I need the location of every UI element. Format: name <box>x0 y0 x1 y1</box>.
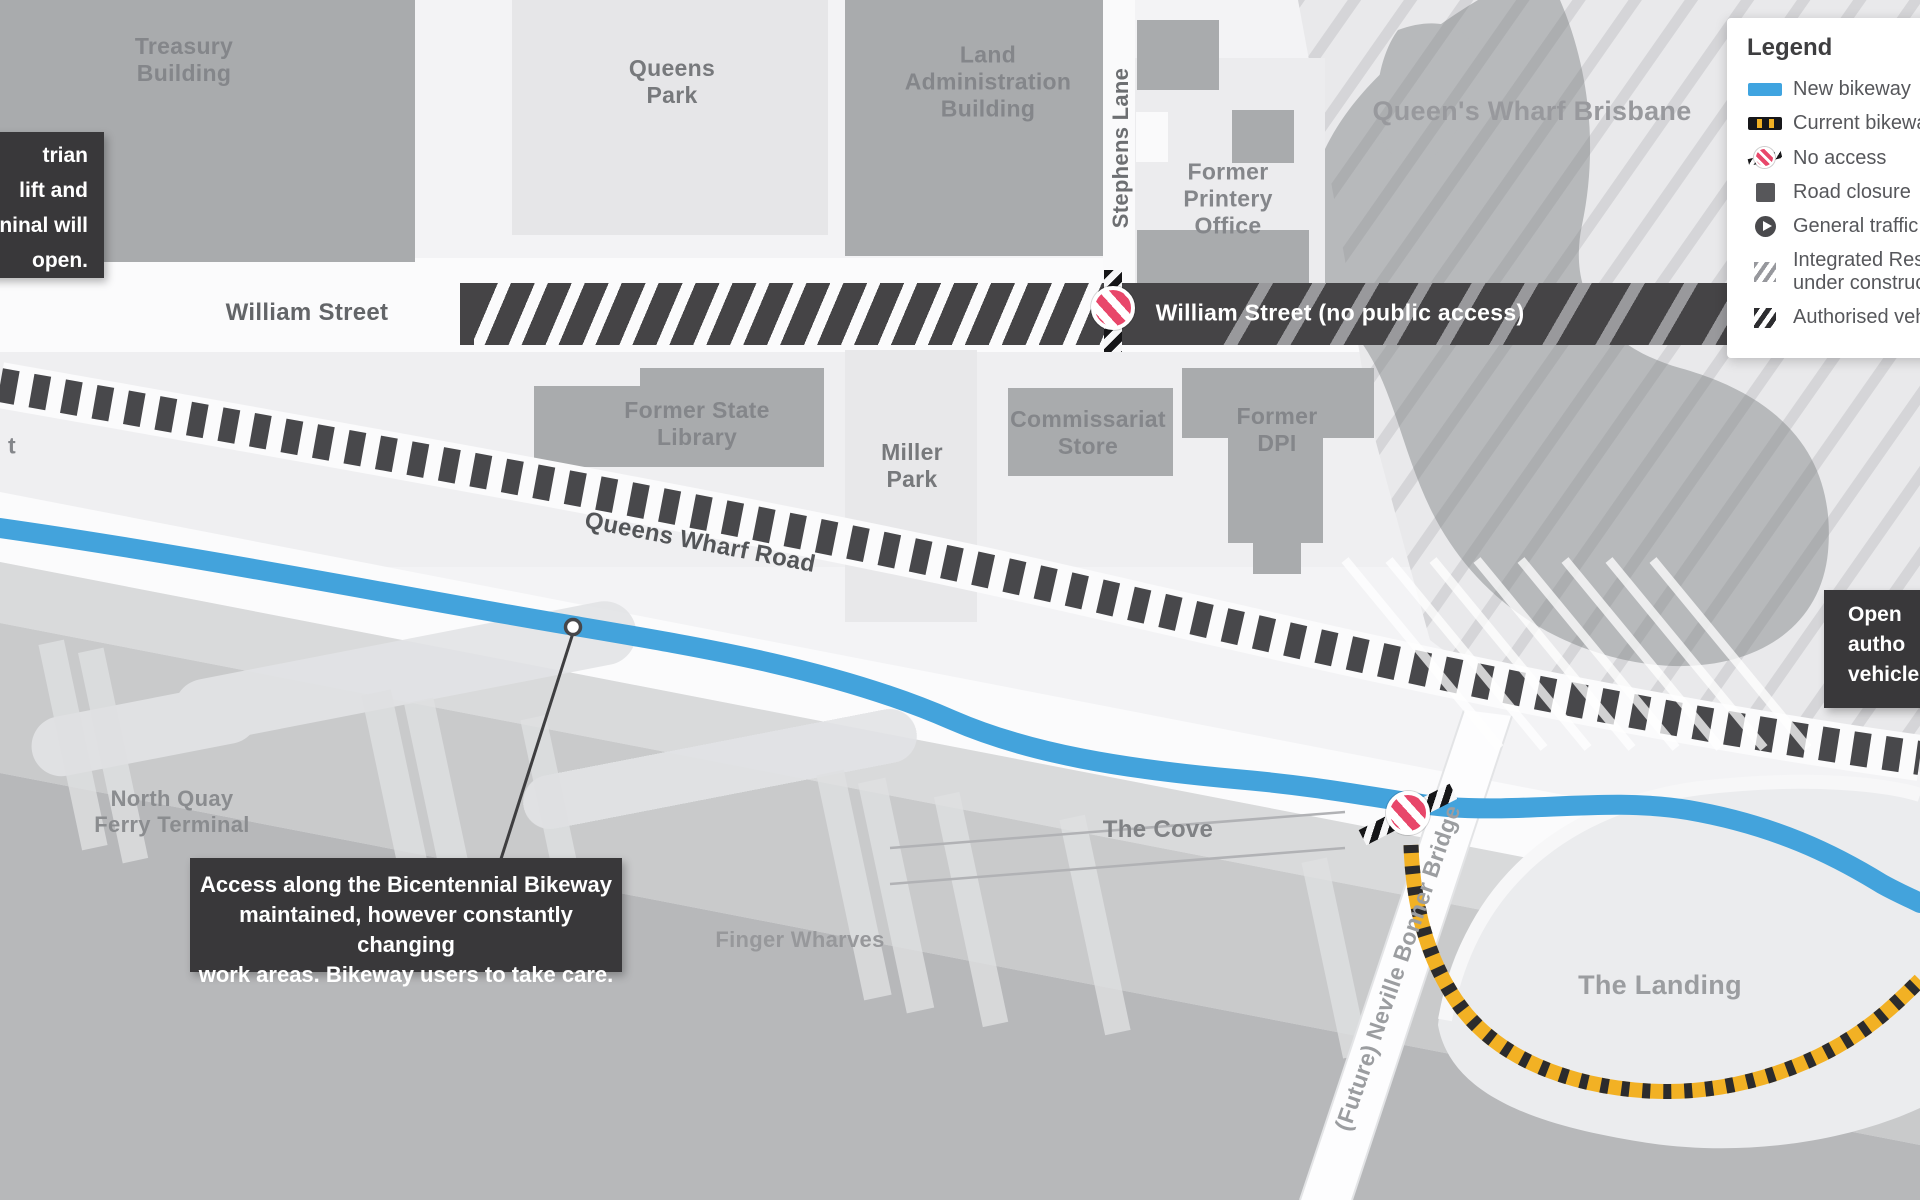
label-the-landing: The Landing <box>1578 970 1742 1002</box>
callout-left-line2: lift and <box>0 173 88 208</box>
label-edge-fragment: t <box>8 432 16 459</box>
legend-item-new-bikeway: New bikeway <box>1747 78 1920 101</box>
label-stephens-lane: Stephens Lane <box>1108 68 1134 228</box>
callout-left-line4: open. <box>0 243 88 278</box>
label-north-quay-ferry-terminal: North Quay Ferry Terminal <box>94 786 249 838</box>
legend-item-authorised-vehicles: Authorised vehicles <box>1747 306 1920 329</box>
callout-bikeway-access-note: Access along the Bicentennial Bikeway ma… <box>190 858 622 972</box>
legend-title: Legend <box>1747 34 1920 62</box>
legend-item-integrated-resort: Integrated Resort under construction <box>1747 249 1920 295</box>
label-william-street: William Street <box>226 299 389 327</box>
label-land-administration: Land Administration Building <box>905 41 1071 122</box>
label-treasury-building: Treasury Building <box>135 33 233 87</box>
label-miller-park: Miller Park <box>881 439 943 493</box>
legend-item-current-bikeway: Current bikeway <box>1747 112 1920 135</box>
no-access-icon <box>1747 146 1783 170</box>
map-routes-layer <box>0 0 1920 1200</box>
callout-right-line3: vehicle <box>1848 660 1920 690</box>
current-bikeway-swatch <box>1747 117 1783 130</box>
callout-right-line2: autho <box>1848 630 1920 660</box>
label-finger-wharves: Finger Wharves <box>715 927 884 953</box>
label-former-dpi: Former DPI <box>1236 403 1317 457</box>
callout-left-line3: ninal will <box>0 208 88 243</box>
construction-access-map: Treasury Building Queens Park Land Admin… <box>0 0 1920 1200</box>
label-william-street-closed: William Street (no public access) <box>1156 299 1525 326</box>
label-former-printery: Former Printery Office <box>1183 158 1272 239</box>
legend-item-general-traffic: General traffic <box>1747 215 1920 238</box>
no-access-icon-cove <box>1386 791 1430 835</box>
authorised-hatch-swatch <box>1747 308 1783 328</box>
label-commissariat-store: Commissariat Store <box>1010 406 1166 460</box>
new-bikeway-swatch <box>1747 83 1783 96</box>
general-traffic-icon <box>1747 216 1783 237</box>
callout-authorised-partial: Open autho vehicle <box>1824 590 1920 708</box>
no-access-icon-william-street <box>1091 286 1135 330</box>
callout-pedestrian-partial: trian lift and ninal will open. <box>0 132 104 278</box>
legend-panel: Legend New bikeway Current bikeway No ac… <box>1727 18 1920 358</box>
callout-left-line1: trian <box>0 138 88 173</box>
label-the-cove: The Cove <box>1103 816 1213 844</box>
label-queens-wharf-brisbane: Queen's Wharf Brisbane <box>1372 96 1691 128</box>
legend-item-road-closure: Road closure <box>1747 181 1920 204</box>
label-former-state-library: Former State Library <box>624 397 769 451</box>
road-closure-swatch <box>1747 183 1783 202</box>
construction-hatch-swatch <box>1747 262 1783 282</box>
callout-right-line1: Open <box>1848 600 1920 630</box>
label-queens-park: Queens Park <box>629 55 715 109</box>
legend-item-no-access: No access <box>1747 146 1920 170</box>
